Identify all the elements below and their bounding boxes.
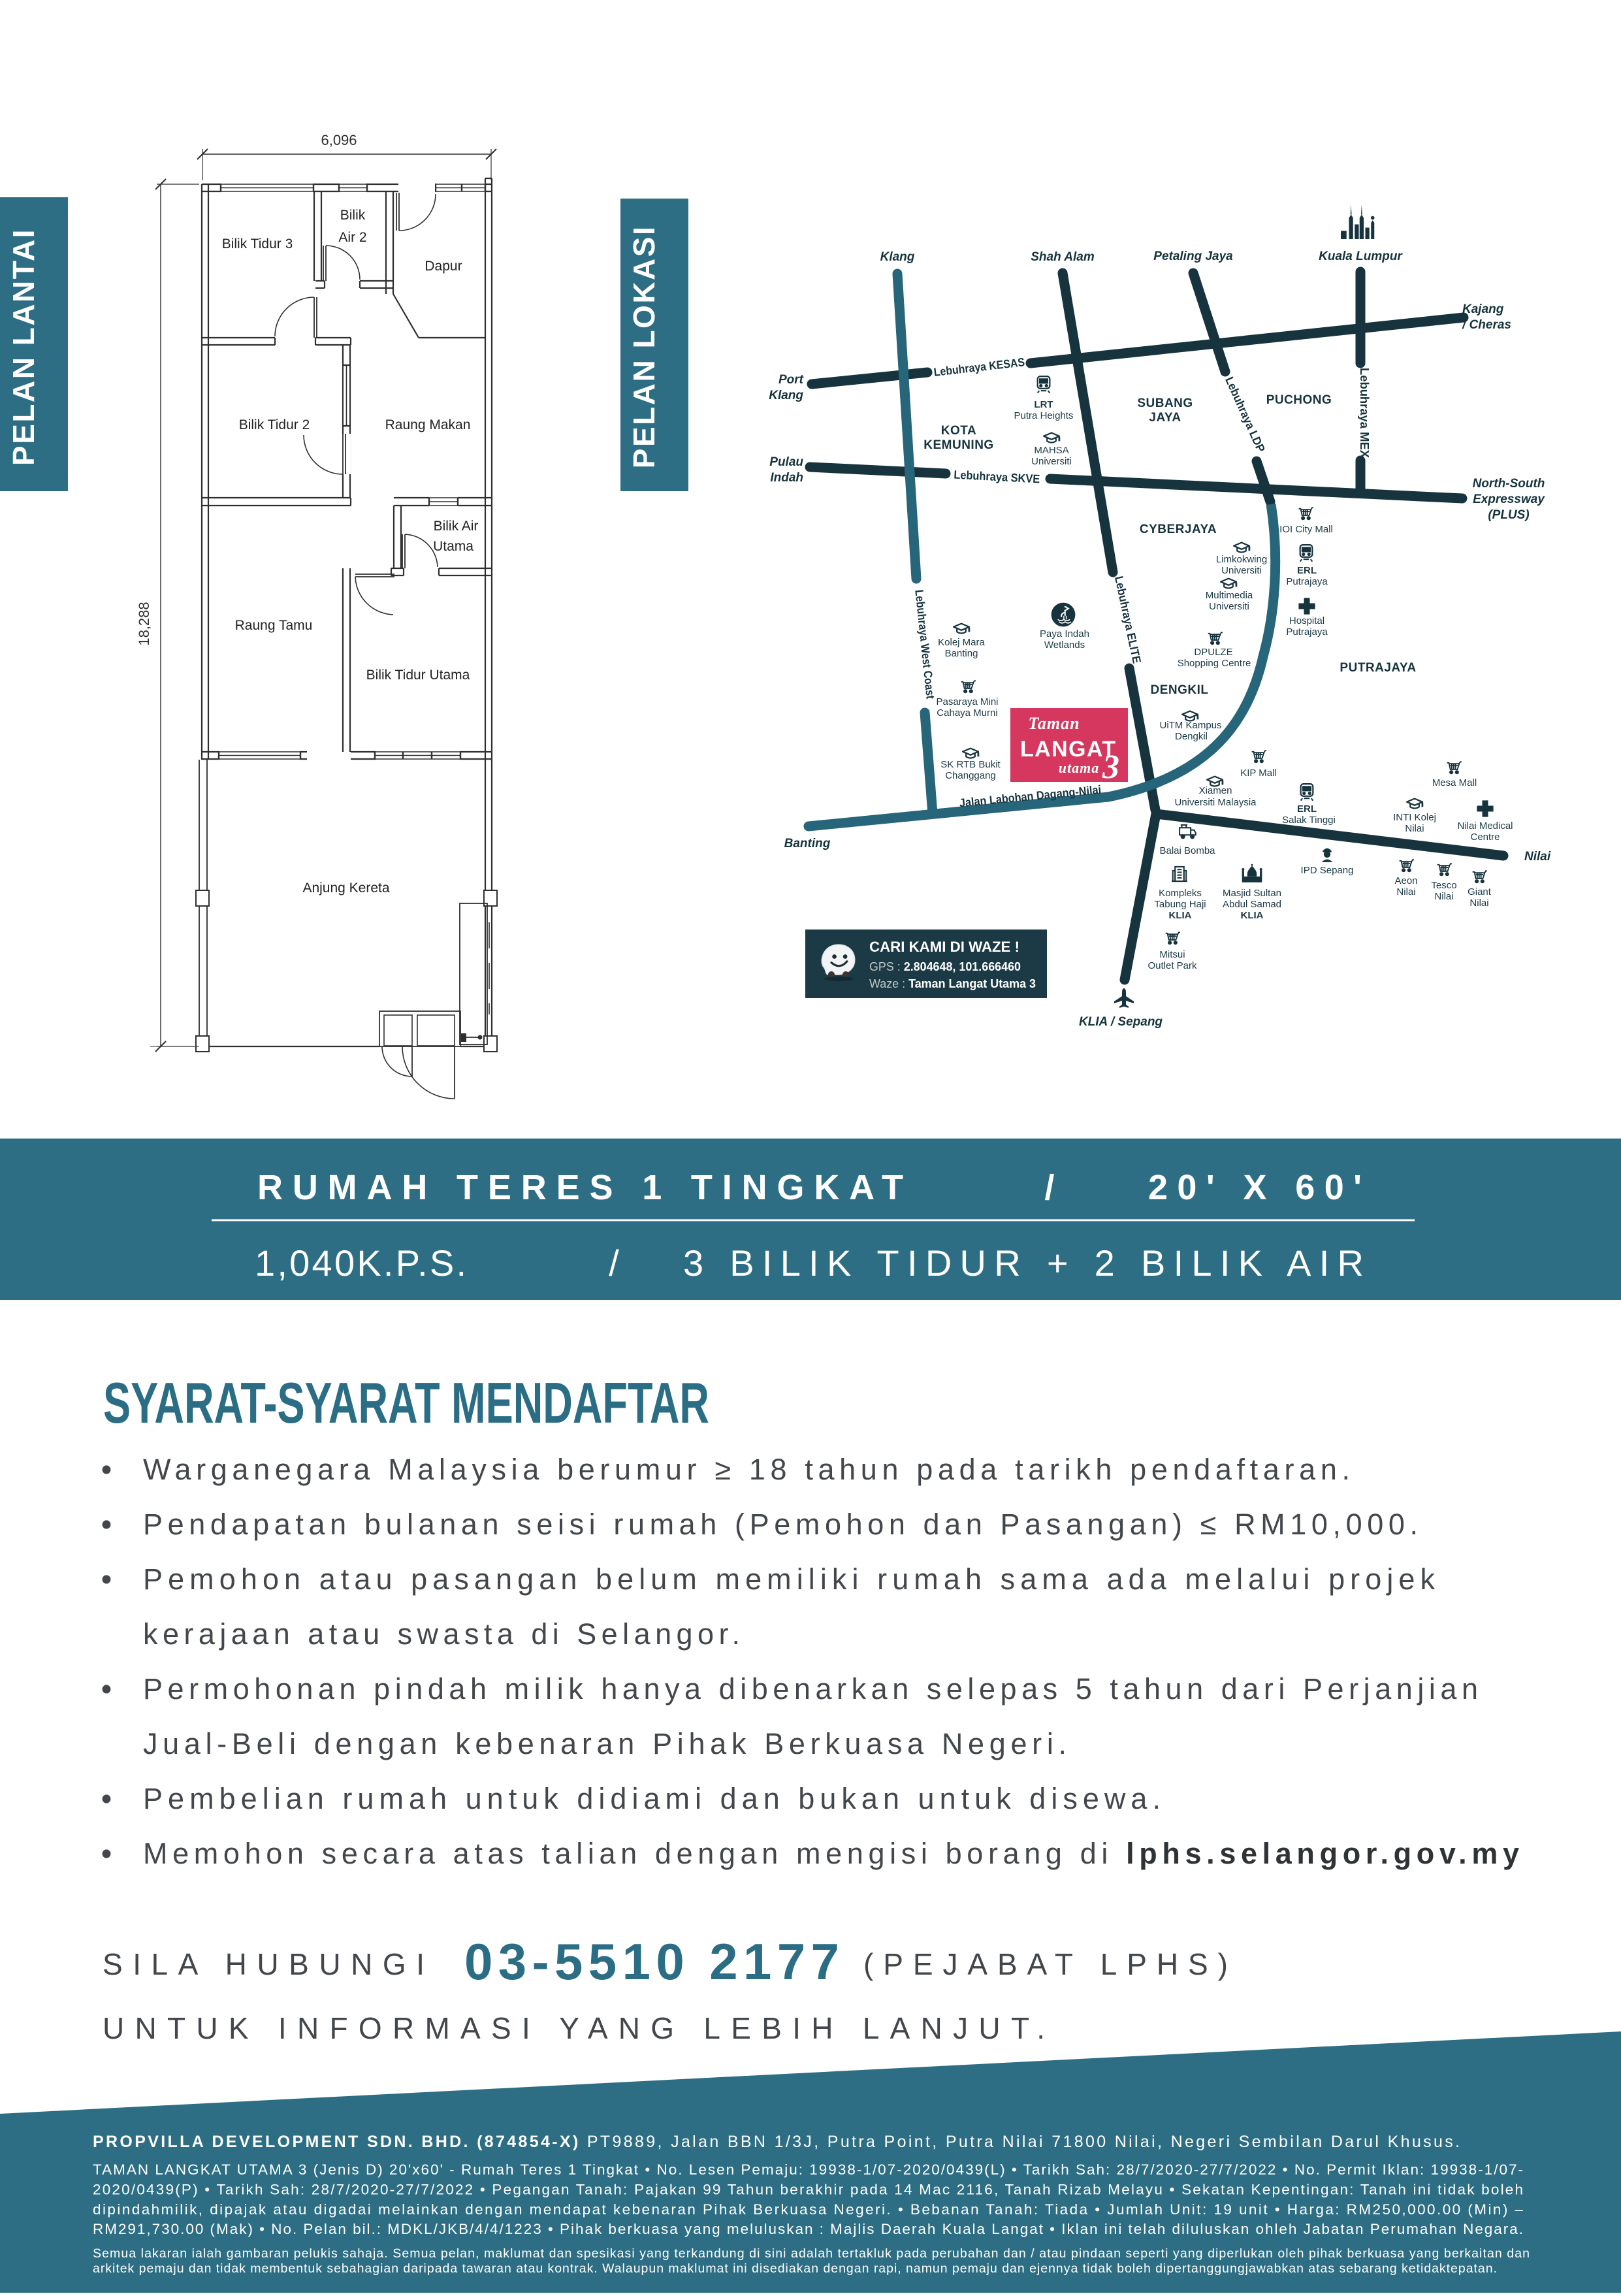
svg-text:RM291,730.00 (Mak) • No. Pelan: RM291,730.00 (Mak) • No. Pelan bil.: MDK… — [93, 2221, 1523, 2237]
svg-text:2020/0439(P) • Tarikh Sah: 28/: 2020/0439(P) • Tarikh Sah: 28/7/2020-27/… — [93, 2181, 1523, 2197]
svg-text:Tabung Haji: Tabung Haji — [1154, 899, 1206, 910]
svg-text:Nilai: Nilai — [1469, 897, 1488, 909]
svg-text:•: • — [101, 1672, 112, 1706]
svg-text:utama: utama — [1059, 760, 1099, 776]
svg-text:18,288: 18,288 — [136, 602, 152, 645]
svg-text:Giant: Giant — [1468, 886, 1492, 897]
svg-text:Shah Alam: Shah Alam — [1031, 250, 1095, 264]
svg-text:6,096: 6,096 — [321, 132, 357, 148]
svg-text:Tesco: Tesco — [1431, 880, 1456, 891]
svg-text:Aeon: Aeon — [1394, 875, 1417, 886]
svg-text:KLIA / Sepang: KLIA / Sepang — [1079, 1015, 1163, 1029]
svg-text:Universiti: Universiti — [1209, 601, 1249, 612]
svg-text:IOI City Mall: IOI City Mall — [1279, 524, 1333, 535]
svg-text:Changgang: Changgang — [945, 770, 996, 781]
svg-text:Kuala Lumpur: Kuala Lumpur — [1319, 250, 1403, 263]
svg-text:ERL: ERL — [1297, 565, 1317, 576]
svg-text:Balai Bomba: Balai Bomba — [1159, 845, 1215, 856]
svg-text:SUBANG: SUBANG — [1137, 396, 1193, 410]
svg-text:LRT: LRT — [1034, 399, 1053, 410]
svg-text:Anjung Kereta: Anjung Kereta — [302, 881, 389, 896]
svg-text:Indah: Indah — [770, 471, 803, 485]
svg-text:Cahaya Murni: Cahaya Murni — [937, 707, 997, 719]
svg-text:Mesa Mall: Mesa Mall — [1432, 777, 1477, 788]
svg-text:Bilik Tidur 3: Bilik Tidur 3 — [222, 236, 293, 251]
svg-text:Masjid Sultan: Masjid Sultan — [1223, 888, 1281, 899]
svg-text:GPS : 2.804648, 101.666460: GPS : 2.804648, 101.666460 — [869, 960, 1021, 973]
svg-text:Expressway: Expressway — [1473, 493, 1545, 506]
svg-text:Utama: Utama — [433, 539, 473, 554]
svg-text:Pembelian rumah untuk didiami: Pembelian rumah untuk didiami dan bukan … — [143, 1782, 1161, 1815]
svg-text:Dapur: Dapur — [425, 259, 462, 274]
svg-text:Klang: Klang — [769, 389, 803, 402]
svg-text:TAMAN LANGKAT UTAMA 3 (Jenis D: TAMAN LANGKAT UTAMA 3 (Jenis D) 20'x60' … — [93, 2161, 1523, 2178]
svg-text:Petaling Jaya: Petaling Jaya — [1153, 250, 1233, 263]
svg-text:Bilik Air: Bilik Air — [434, 519, 479, 534]
svg-text:1,040K.P.S.: 1,040K.P.S. — [255, 1242, 470, 1284]
svg-text:North-South: North-South — [1473, 477, 1545, 491]
svg-text:Salak Tinggi: Salak Tinggi — [1282, 815, 1336, 826]
svg-text:PUTRAJAYA: PUTRAJAYA — [1340, 661, 1416, 675]
svg-text:arkitek pemaju dan tidak membe: arkitek pemaju dan tidak membentuk sebah… — [93, 2261, 1497, 2276]
svg-text:KLIA: KLIA — [1241, 910, 1264, 921]
svg-text:Universiti: Universiti — [1221, 565, 1262, 576]
svg-text:Nilai: Nilai — [1405, 823, 1424, 834]
svg-text:SYARAT-SYARAT MENDAFTAR: SYARAT-SYARAT MENDAFTAR — [103, 1370, 709, 1435]
svg-text:Memohon secara atas talian den: Memohon secara atas talian dengan mengis… — [143, 1837, 1519, 1870]
svg-text:Paya Indah: Paya Indah — [1040, 628, 1089, 639]
svg-text:•: • — [101, 1562, 112, 1596]
svg-text:MAHSA: MAHSA — [1034, 445, 1068, 456]
svg-text:20' X 60': 20' X 60' — [1148, 1168, 1368, 1207]
svg-text:SK RTB Bukit: SK RTB Bukit — [940, 759, 1001, 770]
svg-text:Pendapatan bulanan seisi rumah: Pendapatan bulanan seisi rumah (Pemohon … — [143, 1508, 1418, 1541]
svg-text:ERL: ERL — [1297, 803, 1317, 815]
svg-text:Jual-Beli dengan kebenaran Pih: Jual-Beli dengan kebenaran Pihak Berkuas… — [143, 1727, 1067, 1760]
svg-text:Shopping Centre: Shopping Centre — [1178, 658, 1251, 669]
svg-text:KOTA: KOTA — [941, 424, 976, 438]
svg-text:Port: Port — [778, 373, 804, 387]
svg-text:Kompleks: Kompleks — [1159, 888, 1202, 899]
svg-text:Waze : Taman Langat Utama 3: Waze : Taman Langat Utama 3 — [869, 977, 1036, 990]
svg-text:Putra Heights: Putra Heights — [1014, 410, 1074, 421]
svg-text:Bilik: Bilik — [340, 208, 366, 223]
svg-text:Pulau: Pulau — [769, 455, 803, 469]
svg-text:KIP Mall: KIP Mall — [1240, 768, 1277, 779]
svg-text:Outlet Park: Outlet Park — [1148, 960, 1197, 971]
svg-text:Air 2: Air 2 — [338, 230, 366, 245]
svg-text:UNTUK INFORMASI YANG LEBIH LAN: UNTUK INFORMASI YANG LEBIH LANJUT. — [103, 2011, 1045, 2045]
svg-text:3: 3 — [1102, 749, 1119, 786]
svg-text:Limkokwing: Limkokwing — [1216, 554, 1267, 565]
svg-text:Universiti Malaysia: Universiti Malaysia — [1174, 797, 1257, 808]
svg-text:•: • — [101, 1782, 112, 1815]
svg-text:•: • — [101, 1453, 112, 1486]
svg-text:•: • — [101, 1837, 112, 1870]
svg-text:JAYA: JAYA — [1149, 411, 1181, 425]
svg-text:/: / — [1044, 1168, 1054, 1207]
svg-text:IPD Sepang: IPD Sepang — [1301, 865, 1354, 876]
svg-text:UiTM Kampus: UiTM Kampus — [1159, 720, 1221, 731]
svg-text:/ Cheras: / Cheras — [1462, 318, 1511, 332]
svg-text:Centre: Centre — [1470, 832, 1500, 843]
svg-text:CARI KAMI DI WAZE !: CARI KAMI DI WAZE ! — [869, 939, 1019, 955]
svg-text:Raung Makan: Raung Makan — [385, 417, 471, 432]
svg-text:Klang: Klang — [880, 250, 915, 264]
svg-text:Nilai: Nilai — [1396, 886, 1415, 897]
svg-text:Xiamen: Xiamen — [1199, 785, 1232, 796]
svg-text:Kajang: Kajang — [1462, 302, 1504, 316]
svg-text:•: • — [101, 1508, 112, 1541]
svg-text:PUCHONG: PUCHONG — [1266, 393, 1332, 407]
svg-text:INTI Kolej: INTI Kolej — [1393, 812, 1436, 823]
svg-text:Universiti: Universiti — [1031, 456, 1072, 467]
svg-text:PELAN LANTAI: PELAN LANTAI — [7, 228, 40, 466]
svg-text:CYBERJAYA: CYBERJAYA — [1140, 523, 1217, 536]
svg-text:Bilik Tidur Utama: Bilik Tidur Utama — [366, 668, 470, 683]
svg-text:Dengkil: Dengkil — [1175, 731, 1208, 742]
svg-text:Mitsui: Mitsui — [1159, 949, 1185, 960]
svg-text:Hospital: Hospital — [1289, 615, 1324, 626]
svg-text:Nilai: Nilai — [1434, 891, 1453, 902]
svg-text:Raung Tamu: Raung Tamu — [235, 618, 313, 633]
svg-text:Pasaraya Mini: Pasaraya Mini — [936, 696, 998, 707]
svg-text:Bilik Tidur 2: Bilik Tidur 2 — [239, 417, 310, 432]
svg-text:Taman: Taman — [1028, 714, 1080, 733]
svg-text:Semua lakaran ialah gambaran p: Semua lakaran ialah gambaran pelukis sah… — [93, 2246, 1530, 2261]
svg-text:KEMUNING: KEMUNING — [923, 438, 993, 452]
svg-text:DENGKIL: DENGKIL — [1151, 683, 1209, 697]
svg-text:Multimedia: Multimedia — [1206, 590, 1253, 601]
svg-text:Banting: Banting — [784, 837, 831, 850]
svg-text:(PLUS): (PLUS) — [1488, 508, 1529, 522]
svg-text:PROPVILLA DEVELOPMENT SDN. BHD: PROPVILLA DEVELOPMENT SDN. BHD. (874854-… — [93, 2133, 1460, 2151]
svg-text:Putrajaya: Putrajaya — [1286, 576, 1328, 587]
svg-text:Abdul Samad: Abdul Samad — [1223, 899, 1281, 910]
svg-text:/: / — [609, 1242, 619, 1284]
svg-text:Banting: Banting — [945, 648, 978, 659]
svg-text:PELAN LOKASI: PELAN LOKASI — [627, 225, 661, 468]
svg-text:Wetlands: Wetlands — [1044, 639, 1085, 651]
svg-text:Kolej Mara: Kolej Mara — [938, 637, 985, 648]
svg-text:Lebuhraya MEX: Lebuhraya MEX — [1358, 368, 1371, 458]
svg-text:KLIA: KLIA — [1169, 910, 1192, 921]
svg-text:Putrajaya: Putrajaya — [1286, 626, 1328, 638]
svg-text:DPULZE: DPULZE — [1194, 647, 1232, 658]
svg-text:Nilai Medical: Nilai Medical — [1457, 820, 1513, 832]
svg-text:Nilai: Nilai — [1524, 850, 1551, 864]
